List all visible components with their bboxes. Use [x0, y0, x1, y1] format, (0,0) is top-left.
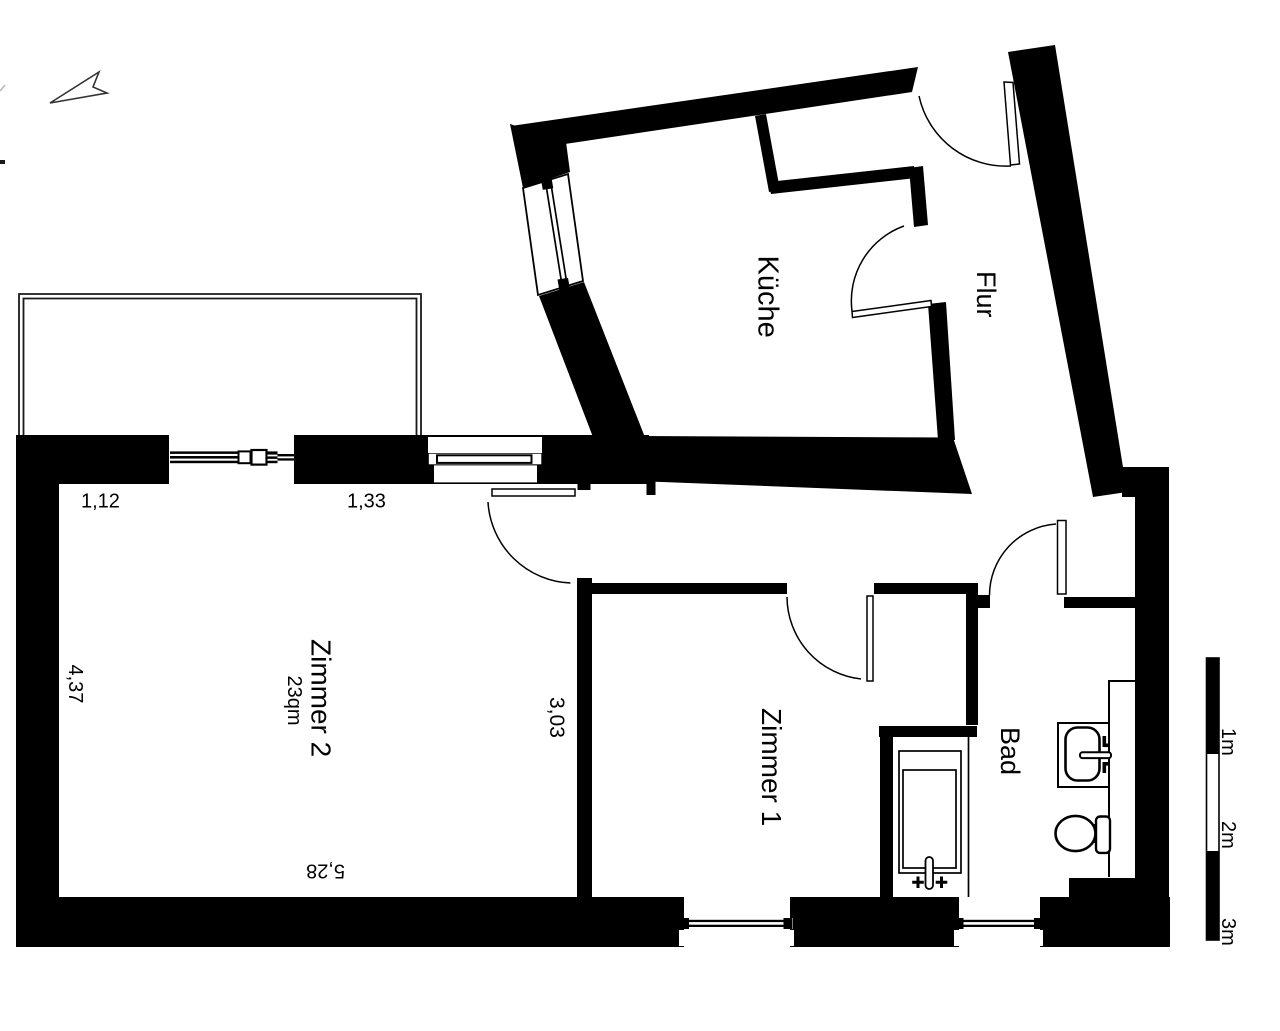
- svg-text:3m: 3m: [1217, 918, 1239, 946]
- svg-text:1,12: 1,12: [81, 491, 120, 513]
- svg-text:5,28: 5,28: [306, 860, 345, 882]
- svg-text:4,37: 4,37: [64, 665, 86, 704]
- svg-text:Zimmer 1: Zimmer 1: [756, 708, 787, 826]
- svg-text:3,03: 3,03: [545, 697, 568, 738]
- svg-text:Küche: Küche: [752, 256, 784, 338]
- svg-text:23qm: 23qm: [283, 676, 305, 726]
- svg-text:1m: 1m: [1217, 728, 1239, 756]
- svg-text:1,33: 1,33: [347, 491, 386, 513]
- svg-text:Bad: Bad: [995, 727, 1025, 775]
- svg-text:Flur: Flur: [971, 271, 1001, 318]
- svg-text:Zimmer 2: Zimmer 2: [306, 639, 337, 757]
- svg-text:2m: 2m: [1217, 821, 1239, 849]
